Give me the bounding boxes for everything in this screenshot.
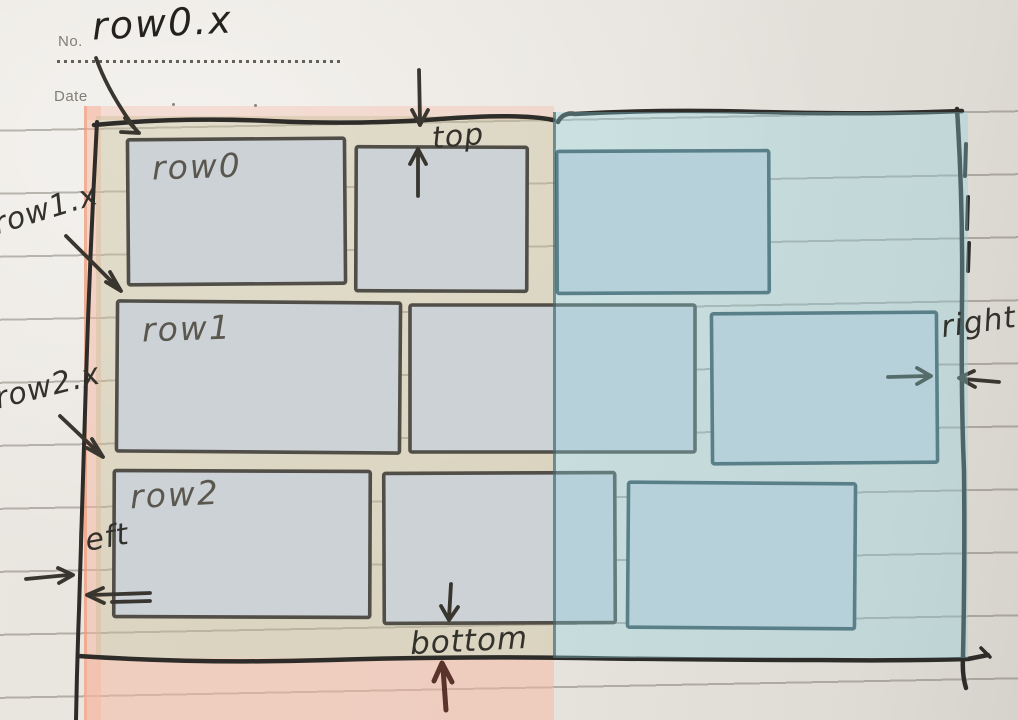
row0x-note: row0.x xyxy=(91,0,233,45)
left-outer-arrow xyxy=(26,568,73,583)
frame-right-dash xyxy=(968,243,969,271)
frame-top-edge xyxy=(94,116,553,125)
row1x-arrow xyxy=(66,236,121,291)
left-note: left xyxy=(74,520,132,559)
sketch-box-row0-1 xyxy=(356,147,528,292)
blue-highlight-zone xyxy=(553,112,968,658)
top-note: top xyxy=(431,120,486,154)
row0-box-label: row0 xyxy=(151,148,242,184)
row2-box-label: row2 xyxy=(129,476,220,514)
notebook-photo: No. Date xyxy=(0,0,1018,720)
bottom-up-arrow xyxy=(434,663,452,710)
bottom-note: bottom xyxy=(409,623,529,660)
top-down-arrow xyxy=(412,70,428,125)
row1-box-label: row1 xyxy=(141,310,232,346)
row2x-arrow xyxy=(60,416,103,457)
